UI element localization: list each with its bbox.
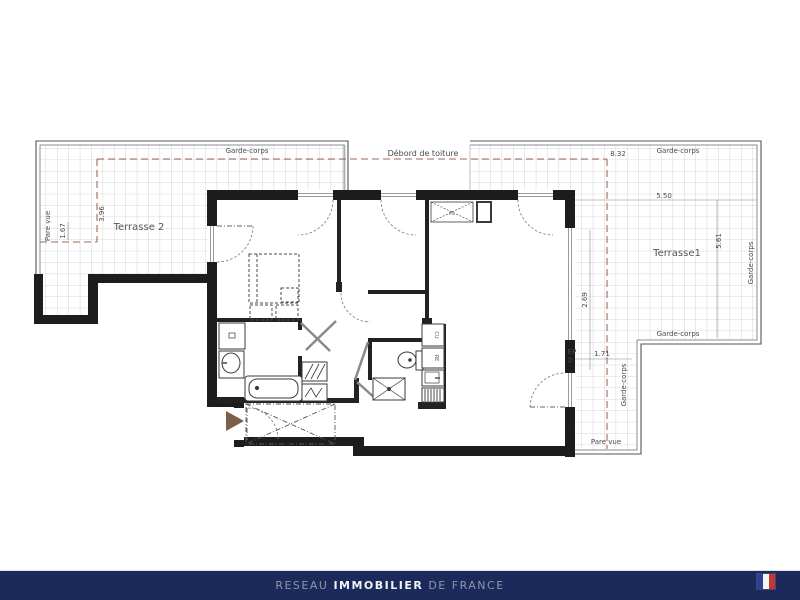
shower bbox=[373, 378, 405, 400]
nightstand-left bbox=[250, 305, 272, 320]
arc-terrace2-door bbox=[217, 226, 253, 262]
dim-1-71: 1.71 bbox=[594, 350, 610, 358]
arc-terrace1-door bbox=[530, 373, 565, 407]
roof-overhang-label: Débord de toiture bbox=[388, 148, 459, 158]
washing-machine bbox=[219, 323, 245, 349]
dim-5-50: 5.50 bbox=[656, 192, 672, 200]
terrace-1 bbox=[470, 141, 761, 454]
kitchen-fridge-label: RE bbox=[433, 355, 439, 362]
kitchen-hob-label: CU bbox=[433, 331, 439, 338]
arc-bed1-window bbox=[298, 200, 333, 235]
floor-plan-canvas: Terrasse 2 Terrasse1 Garde-corps Garde-c… bbox=[0, 0, 800, 600]
water-heater bbox=[302, 362, 327, 381]
dim-1-67: 1.67 bbox=[59, 223, 67, 239]
terrace2-label: Terrasse 2 bbox=[113, 222, 165, 233]
bed bbox=[249, 254, 299, 320]
ep-label: EP bbox=[568, 348, 577, 356]
bathtub bbox=[245, 376, 302, 401]
brand-suffix: DE FRANCE bbox=[423, 579, 504, 592]
arc-living-window bbox=[518, 200, 553, 235]
duct bbox=[477, 202, 491, 222]
washbasin bbox=[219, 351, 244, 378]
footer-bar: RESEAU IMMOBILIER DE FRANCE bbox=[0, 570, 800, 600]
garde-corps-t2: Garde-corps bbox=[226, 147, 269, 155]
kitchen-sink bbox=[422, 370, 444, 386]
toilet bbox=[398, 351, 423, 370]
apartment-walls bbox=[207, 190, 575, 457]
dim-5-61: 5.61 bbox=[715, 233, 723, 249]
kitchen-hob bbox=[422, 324, 444, 346]
brand-text: RESEAU IMMOBILIER DE FRANCE bbox=[275, 579, 504, 592]
floorplan-page: Terrasse 2 Terrasse1 Garde-corps Garde-c… bbox=[0, 0, 800, 600]
french-flag-icon bbox=[757, 574, 775, 589]
garde-corps-t1-top: Garde-corps bbox=[657, 147, 700, 155]
terrace-2 bbox=[34, 141, 348, 324]
closet-pl-label: PL bbox=[449, 211, 455, 217]
brand-prefix: RESEAU bbox=[275, 579, 333, 592]
dim-2-69: 2.69 bbox=[581, 292, 589, 308]
arc-bed2-window bbox=[381, 200, 416, 235]
arc-bed2-door bbox=[341, 293, 370, 322]
radiator bbox=[302, 384, 327, 401]
brand-main: IMMOBILIER bbox=[333, 579, 423, 592]
arc-front-door bbox=[247, 408, 278, 439]
garde-corps-t1-right: Garde-corps bbox=[747, 241, 755, 284]
garde-corps-strip: Garde-corps bbox=[620, 363, 628, 406]
dim-8-32: 8.32 bbox=[610, 150, 626, 158]
kitchen-fridge bbox=[422, 348, 444, 368]
dishwasher bbox=[422, 388, 444, 402]
pare-vue-left: Pare vue bbox=[44, 211, 52, 241]
terrace1-label: Terrasse1 bbox=[652, 248, 701, 259]
nightstand-right bbox=[276, 305, 298, 320]
pare-vue-strip: Pare vue bbox=[591, 438, 621, 446]
garde-corps-t1-bottom: Garde-corps bbox=[657, 330, 700, 338]
dim-3-96: 3.96 bbox=[98, 206, 106, 222]
